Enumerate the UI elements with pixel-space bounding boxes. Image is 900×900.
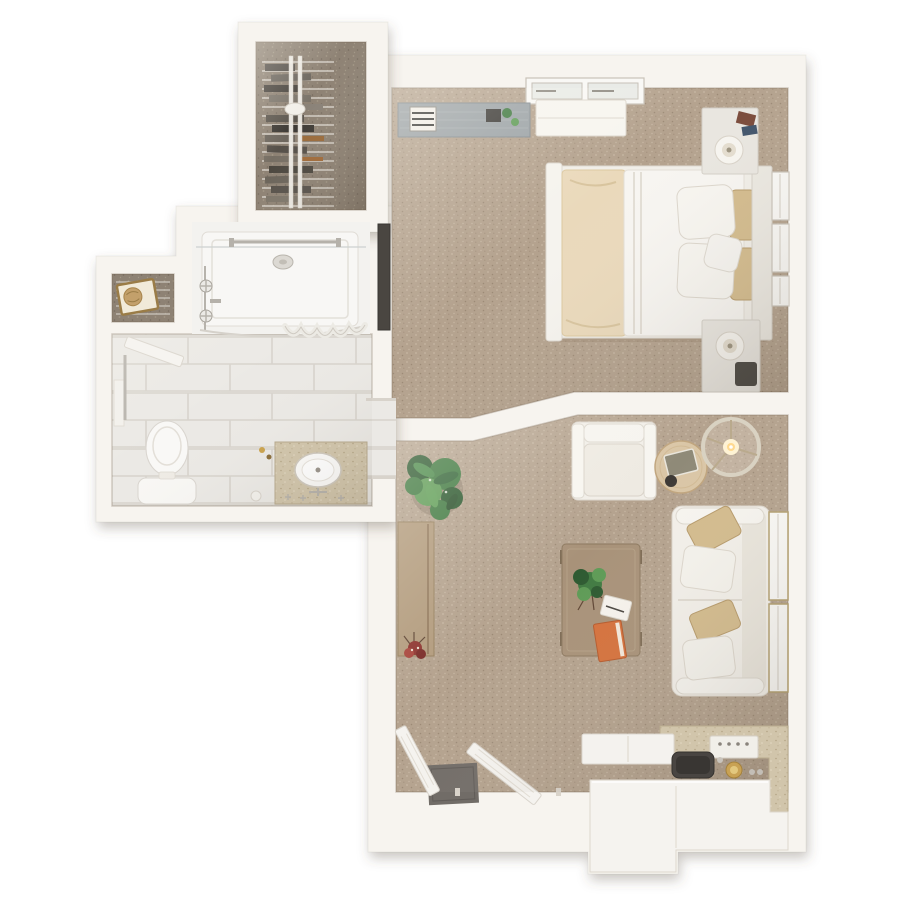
- counter-front: [590, 780, 788, 872]
- cooktop-knob: [718, 742, 722, 746]
- cooktop-knob: [727, 742, 731, 746]
- bathroom-shading: [112, 334, 372, 506]
- walk-in-shower: [192, 222, 370, 336]
- sink-faucet: [717, 757, 723, 763]
- cooktop: [710, 736, 758, 758]
- bedroom-shading: [392, 88, 788, 418]
- shower-drain-cap: [279, 260, 287, 265]
- cooktop-knob: [736, 742, 740, 746]
- tub-spout: [210, 299, 221, 303]
- dark-wall-panel: [378, 224, 390, 330]
- bedroom: [378, 78, 789, 418]
- towel-bar-bracket: [229, 238, 234, 247]
- fixture-knob: [757, 769, 763, 775]
- closet-shading: [256, 42, 366, 210]
- storage-basket: [117, 279, 159, 315]
- cooktop-body: [710, 736, 758, 758]
- gold-bowl-inner: [730, 766, 738, 774]
- cooktop-knob: [745, 742, 749, 746]
- fixture-knob: [749, 769, 755, 775]
- faucet-handle: [200, 280, 212, 292]
- apartment-floorplan: [0, 0, 900, 900]
- kitchenette: [582, 726, 788, 872]
- floorplan-stage: [0, 0, 900, 900]
- towel-bar-bracket: [336, 238, 341, 247]
- shower-pan: [202, 232, 358, 326]
- walk-in-closet: [256, 42, 366, 210]
- faucet-handle: [200, 310, 212, 322]
- sink-basin: [676, 756, 710, 774]
